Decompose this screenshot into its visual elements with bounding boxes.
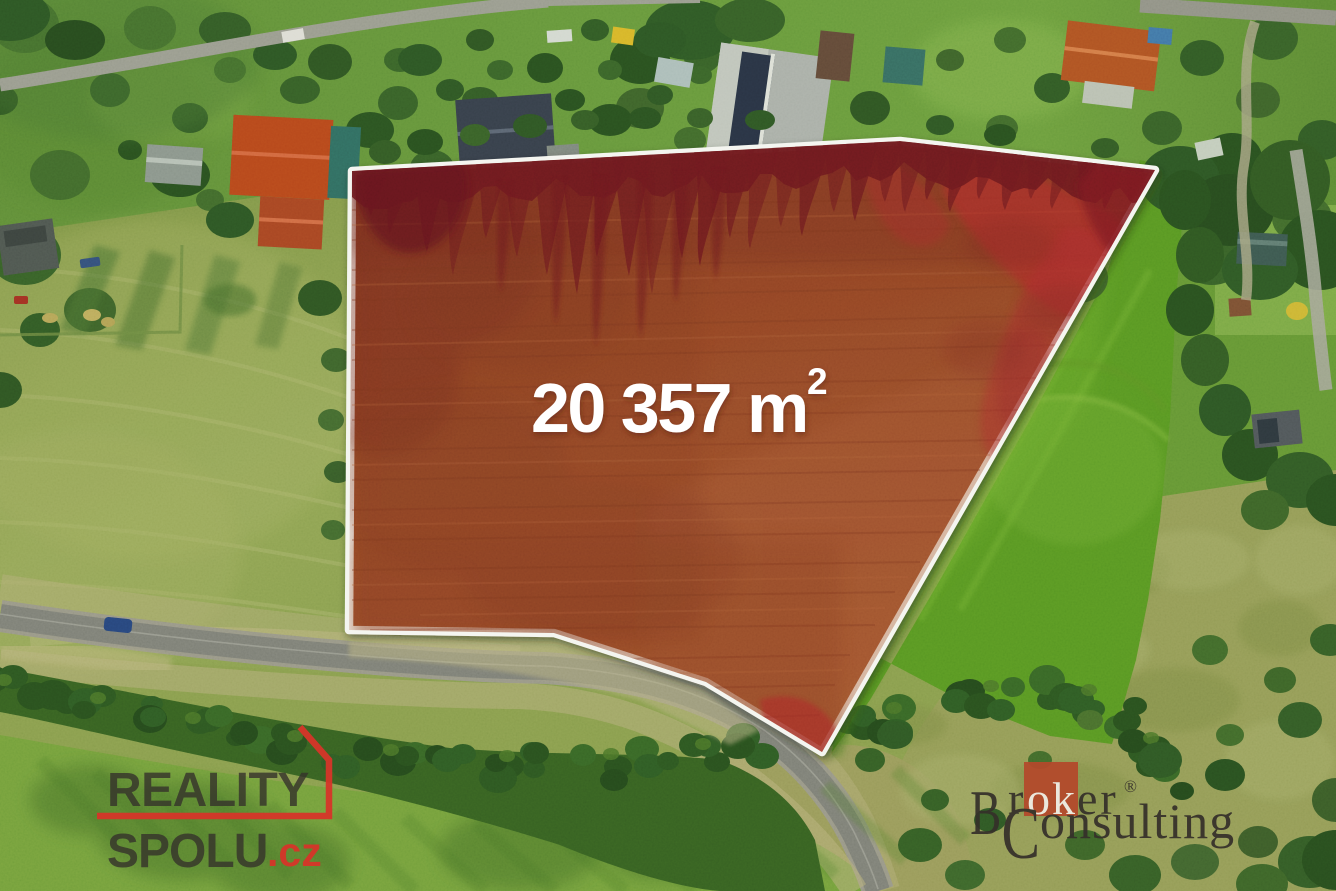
svg-text:onsulting: onsulting [1040, 793, 1235, 849]
svg-text:SPOLU: SPOLU [107, 825, 267, 878]
svg-text:.cz: .cz [267, 829, 322, 875]
svg-text:REALITY: REALITY [107, 764, 309, 817]
svg-text:2: 2 [807, 361, 828, 402]
svg-text:C: C [1002, 793, 1041, 874]
svg-text:20 357 m: 20 357 m [531, 369, 807, 447]
svg-text:B: B [970, 778, 1001, 849]
